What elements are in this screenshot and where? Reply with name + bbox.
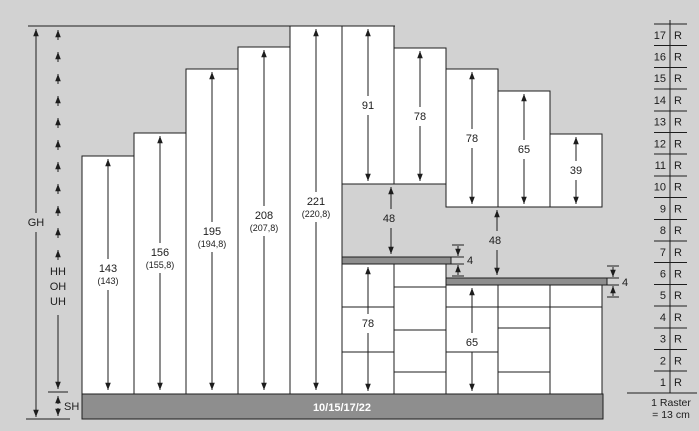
raster-row-number: 16 bbox=[654, 52, 666, 64]
raster-row-number: 17 bbox=[654, 30, 666, 42]
plinth-label: 10/15/17/22 bbox=[313, 402, 371, 414]
base-unit bbox=[550, 285, 602, 394]
raster-row-unit: R bbox=[674, 290, 682, 302]
raster-row-unit: R bbox=[674, 73, 682, 85]
raster-row-unit: R bbox=[674, 160, 682, 172]
tall-unit-value: 156 bbox=[151, 247, 169, 259]
raster-row-number: 1 bbox=[660, 377, 666, 389]
worktop-2 bbox=[446, 278, 607, 285]
raster-row-number: 3 bbox=[660, 334, 666, 346]
uh-label: UH bbox=[50, 296, 66, 308]
raster-legend-line1: 1 Raster bbox=[651, 397, 691, 409]
raster-row-number: 13 bbox=[654, 117, 666, 129]
oh-label: OH bbox=[50, 281, 67, 293]
raster-row-number: 4 bbox=[660, 312, 666, 324]
raster-row-number: 2 bbox=[660, 355, 666, 367]
raster-row-unit: R bbox=[674, 312, 682, 324]
raster-row-unit: R bbox=[674, 355, 682, 367]
hang-gap-value: 48 bbox=[383, 213, 395, 225]
raster-row-unit: R bbox=[674, 269, 682, 281]
wall-unit-value: 91 bbox=[362, 100, 374, 112]
raster-row-number: 14 bbox=[654, 95, 666, 107]
raster-row-number: 9 bbox=[660, 203, 666, 215]
tall-unit-value: 195 bbox=[203, 226, 221, 238]
raster-row-unit: R bbox=[674, 203, 682, 215]
raster-row-unit: R bbox=[674, 138, 682, 150]
hh-label: HH bbox=[50, 266, 66, 278]
kitchen-height-diagram: 10/15/17/22 143 (143) 156 (155,8) 195 (1… bbox=[0, 0, 699, 431]
hang-gap-value: 48 bbox=[489, 235, 501, 247]
raster-row-number: 7 bbox=[660, 247, 666, 259]
raster-row-number: 11 bbox=[655, 160, 666, 172]
wall-unit-value: 39 bbox=[570, 165, 582, 177]
raster-scale: 17 R 16 R 15 R 14 R 13 R 12 R 11 R 10 R … bbox=[627, 20, 697, 421]
raster-row-number: 5 bbox=[660, 290, 666, 302]
raster-row-number: 8 bbox=[660, 225, 666, 237]
tall-unit-value: 208 bbox=[255, 210, 273, 222]
raster-row-unit: R bbox=[674, 334, 682, 346]
raster-row-number: 6 bbox=[660, 269, 666, 281]
tall-unit-actual: (207,8) bbox=[250, 223, 279, 233]
worktop-1 bbox=[342, 257, 451, 264]
sh-label: SH bbox=[64, 401, 79, 413]
tall-unit-actual: (143) bbox=[97, 276, 118, 286]
left-reference-dimensions: GH HH OH UH SH bbox=[26, 29, 79, 419]
tall-unit-actual: (220,8) bbox=[302, 209, 331, 219]
raster-row-number: 15 bbox=[654, 73, 666, 85]
tall-unit-actual: (194,8) bbox=[198, 239, 227, 249]
gh-label: GH bbox=[28, 217, 45, 229]
wall-unit-value: 78 bbox=[466, 133, 478, 145]
base-unit-value: 78 bbox=[362, 318, 374, 330]
tall-unit-value: 221 bbox=[307, 196, 325, 208]
raster-legend-line2: = 13 cm bbox=[652, 409, 690, 421]
raster-row-unit: R bbox=[674, 225, 682, 237]
raster-row-unit: R bbox=[674, 117, 682, 129]
raster-row-number: 12 bbox=[654, 138, 666, 150]
raster-row-number: 10 bbox=[654, 182, 666, 194]
raster-row-unit: R bbox=[674, 95, 682, 107]
raster-row-unit: R bbox=[674, 30, 682, 42]
raster-row-unit: R bbox=[674, 377, 682, 389]
worktop-thickness-value: 4 bbox=[622, 277, 628, 289]
base-unit bbox=[394, 264, 446, 394]
raster-row-unit: R bbox=[674, 247, 682, 259]
diagram-canvas: 10/15/17/22 143 (143) 156 (155,8) 195 (1… bbox=[0, 0, 699, 431]
wall-unit-value: 78 bbox=[414, 111, 426, 123]
tall-unit-value: 143 bbox=[99, 263, 117, 275]
wall-unit-value: 65 bbox=[518, 144, 530, 156]
base-unit-value: 65 bbox=[466, 337, 478, 349]
base-unit bbox=[498, 285, 550, 394]
tall-unit-actual: (155,8) bbox=[146, 260, 175, 270]
raster-row-unit: R bbox=[674, 182, 682, 194]
base-units-78 bbox=[342, 264, 446, 394]
worktop-thickness-value: 4 bbox=[467, 255, 473, 267]
raster-row-unit: R bbox=[674, 52, 682, 64]
